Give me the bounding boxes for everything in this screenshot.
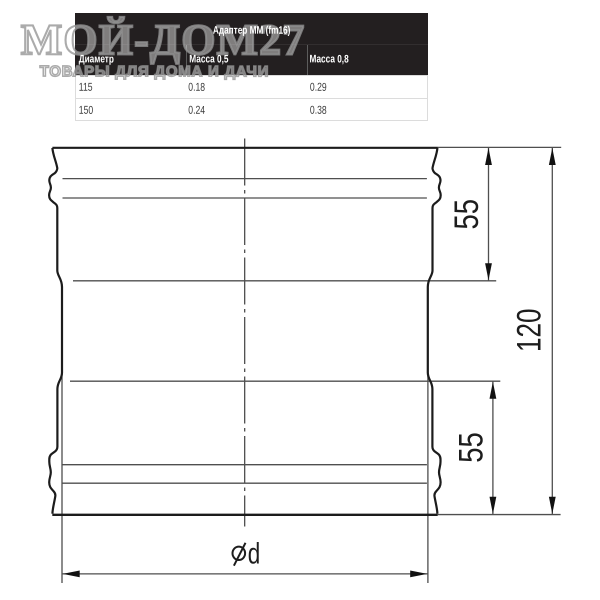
- svg-text:d: d: [248, 537, 261, 570]
- svg-text:0.38: 0.38: [310, 105, 327, 117]
- svg-text:150: 150: [79, 105, 94, 117]
- svg-text:0.18: 0.18: [188, 82, 205, 94]
- svg-text:55: 55: [448, 199, 486, 230]
- svg-text:Диаметр: Диаметр: [79, 53, 114, 65]
- svg-text:Масса 0,8: Масса 0,8: [309, 53, 349, 66]
- svg-text:МОЙ-ДОМ27: МОЙ-ДОМ27: [21, 15, 306, 64]
- svg-text:115: 115: [79, 82, 93, 94]
- svg-text:120: 120: [511, 308, 549, 352]
- svg-text:Адаптер ММ (fm16): Адаптер ММ (fm16): [213, 25, 291, 38]
- svg-text:0.29: 0.29: [310, 82, 327, 94]
- svg-text:ТОВАРЫ ДЛЯ ДОМА И ДАЧИ: ТОВАРЫ ДЛЯ ДОМА И ДАЧИ: [40, 63, 269, 80]
- svg-text:Масса 0,5: Масса 0,5: [189, 53, 229, 66]
- svg-text:55: 55: [453, 432, 491, 463]
- svg-text:0.24: 0.24: [188, 105, 205, 117]
